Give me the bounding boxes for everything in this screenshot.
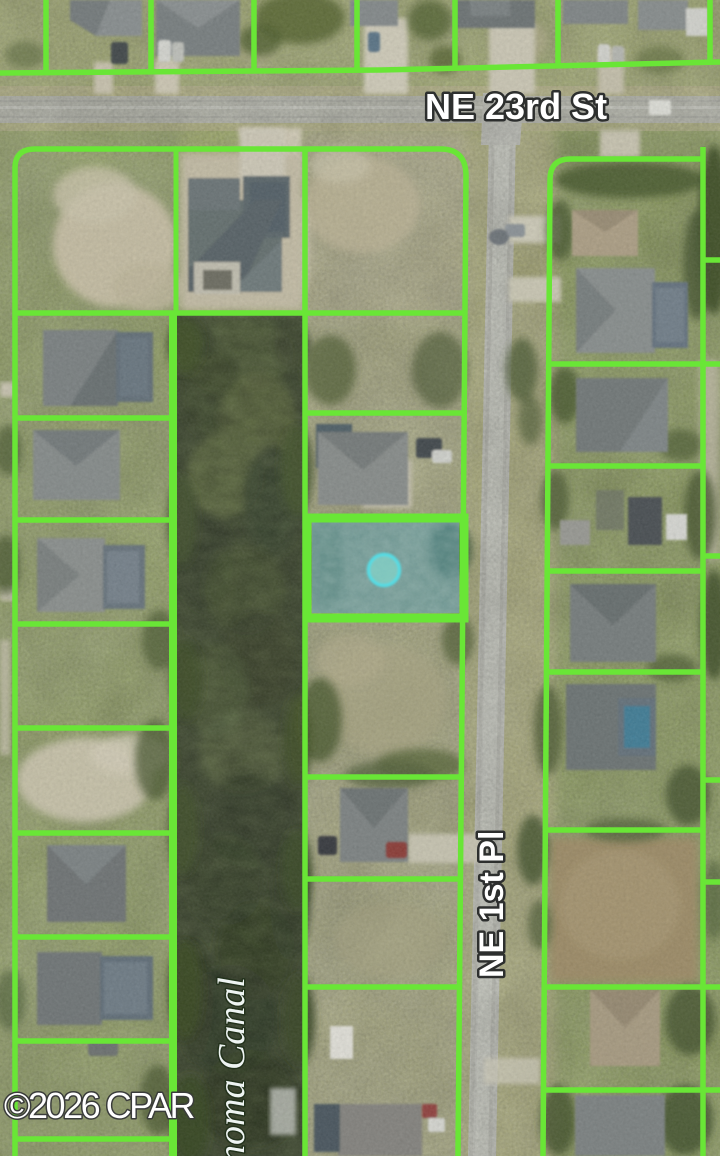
svg-text:©2026 CPAR: ©2026 CPAR xyxy=(4,1085,194,1126)
svg-text:Sonoma Canal: Sonoma Canal xyxy=(211,977,253,1156)
svg-text:NE 1st Pl: NE 1st Pl xyxy=(473,831,511,978)
svg-text:NE 23rd St: NE 23rd St xyxy=(425,86,607,127)
